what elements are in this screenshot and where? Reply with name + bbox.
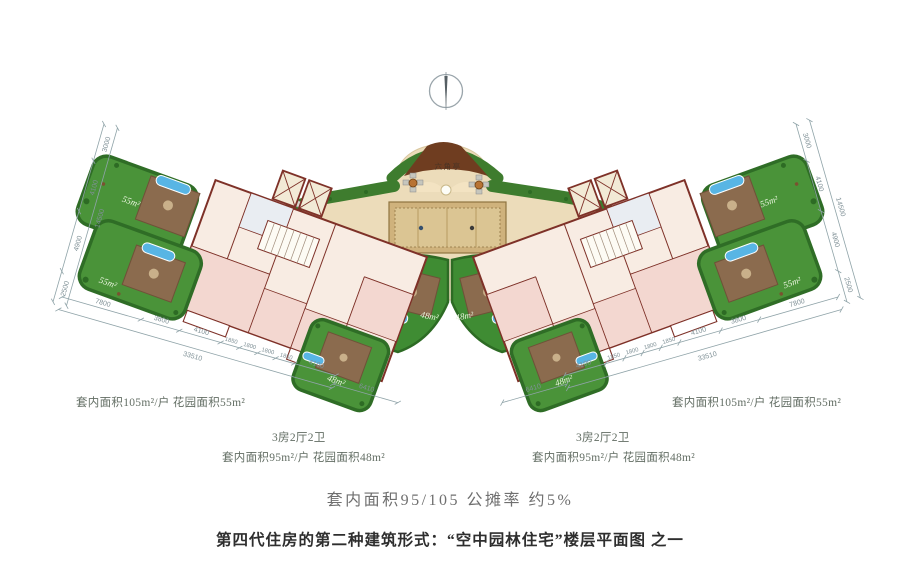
left-unit-small-note: 套内面积95m²/户 花园面积48m² bbox=[222, 449, 385, 465]
svg-text:14500: 14500 bbox=[834, 197, 846, 218]
north-compass-icon bbox=[430, 72, 463, 110]
svg-text:33510: 33510 bbox=[697, 351, 718, 363]
svg-text:1800: 1800 bbox=[261, 347, 275, 356]
plaza-carpet bbox=[389, 202, 506, 253]
left-unit-type-note: 3房2厅2卫 bbox=[272, 429, 326, 445]
figure-caption: 第四代住房的第二种建筑形式：“空中园林住宅”楼层平面图 之一 bbox=[0, 528, 900, 550]
svg-text:1850: 1850 bbox=[662, 337, 676, 346]
left-unit-area-note: 套内面积105m²/户 花园面积55m² bbox=[76, 394, 245, 410]
pavilion-label: 六角亭 bbox=[435, 161, 462, 171]
right-unit-type-note: 3房2厅2卫 bbox=[576, 429, 630, 445]
svg-text:1800: 1800 bbox=[643, 342, 657, 351]
right-unit-area-note: 套内面积105m²/户 花园面积55m² bbox=[672, 394, 841, 410]
pavilion-planter bbox=[441, 185, 451, 195]
svg-text:1800: 1800 bbox=[242, 342, 256, 351]
area-summary: 套内面积95/105 公摊率 约5% bbox=[0, 486, 900, 510]
svg-text:1800: 1800 bbox=[625, 347, 639, 356]
svg-text:1850: 1850 bbox=[224, 337, 238, 346]
right-unit-small-note: 套内面积95m²/户 花园面积48m² bbox=[532, 449, 695, 465]
wing-right: 55m² 55m² 48m² bbox=[462, 109, 855, 415]
floorplan-page: 六角亭 48m² 48m² bbox=[0, 0, 900, 569]
svg-text:33510: 33510 bbox=[182, 351, 203, 363]
wing-left: 55m² 55m² 48m² bbox=[45, 109, 438, 415]
floorplan-drawing: 六角亭 48m² 48m² bbox=[0, 0, 900, 569]
